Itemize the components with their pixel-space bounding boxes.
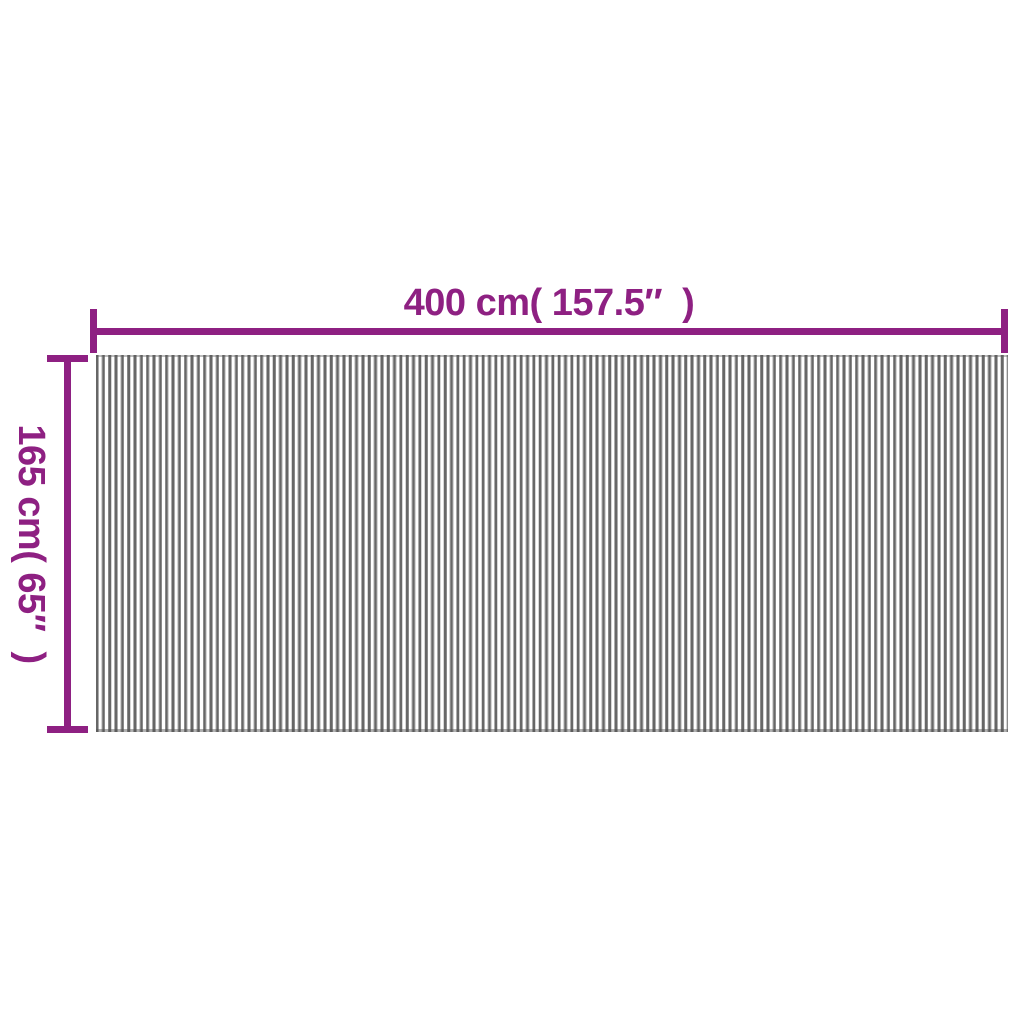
height-dimension-bottom-tick [47, 726, 88, 733]
width-dimension-label: 400 cm( 157.5″ ) [93, 281, 1005, 325]
height-dimension-line [64, 355, 71, 733]
height-dimension-label: 165 cm( 65″ ) [9, 344, 53, 744]
height-dimension-top-tick [47, 355, 88, 362]
panel-bottom-edge [96, 729, 1008, 732]
product-dimension-diagram: 400 cm( 157.5″ ) 165 cm( 65″ ) [0, 0, 1024, 1024]
room-divider-striped-panel [96, 355, 1008, 732]
panel-top-edge [96, 355, 1008, 357]
width-dimension-line [93, 328, 1005, 335]
